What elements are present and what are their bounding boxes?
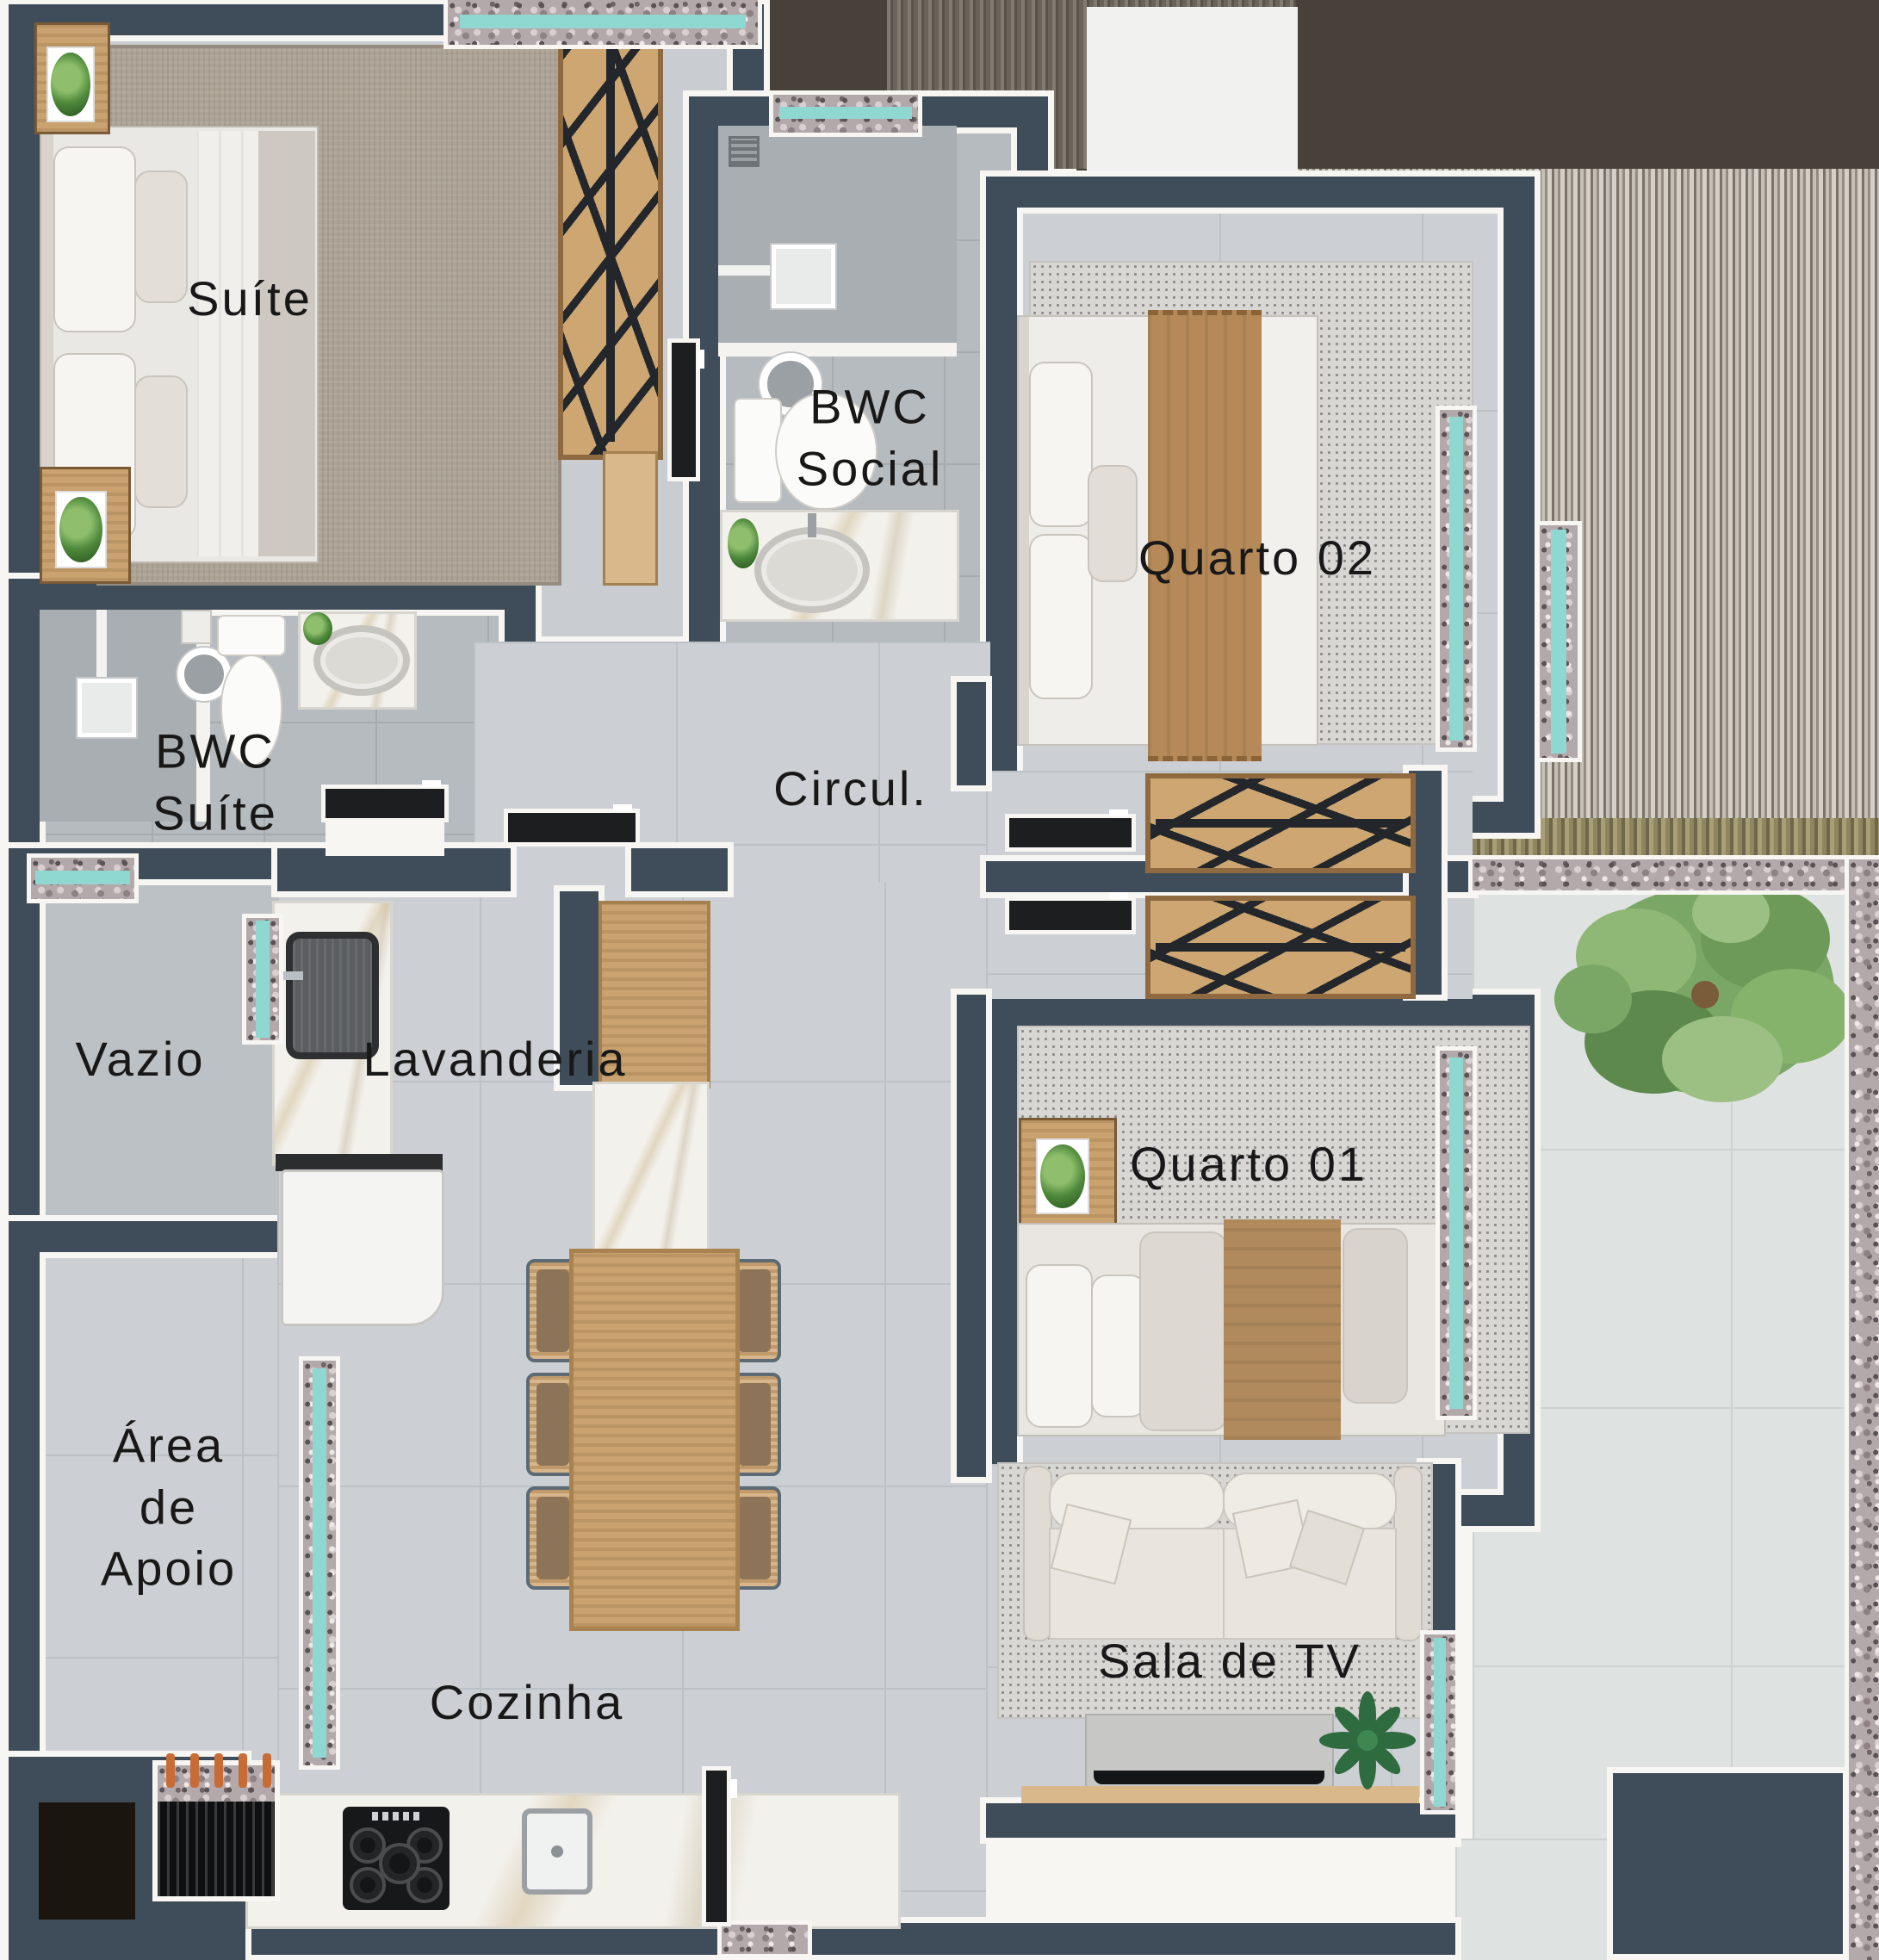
balcony-rail-top bbox=[1473, 859, 1879, 890]
window-bwc-social bbox=[773, 95, 918, 133]
door-bwc-social bbox=[672, 343, 696, 477]
cooktop-icon bbox=[343, 1807, 450, 1910]
wardrobe-icon bbox=[1145, 773, 1416, 873]
pillow bbox=[1029, 362, 1093, 527]
window-suite-top bbox=[448, 0, 758, 45]
wall-lavanderia-top-right bbox=[631, 848, 728, 891]
room-label-bwc-social: BWC Social bbox=[797, 375, 944, 499]
door-quarto-01 bbox=[1009, 901, 1132, 930]
pillow bbox=[1088, 465, 1138, 582]
pipes-icon bbox=[158, 1802, 275, 1896]
shower-arm bbox=[96, 610, 107, 682]
pillow bbox=[1343, 1228, 1408, 1404]
suite-wardrobe-icon bbox=[558, 22, 663, 460]
pillow bbox=[134, 171, 188, 303]
wall-kitchen-divider bbox=[957, 995, 986, 1477]
pillow bbox=[53, 146, 136, 332]
valve-handle-icon bbox=[239, 1753, 247, 1788]
room-label-quarto-02: Quarto 02 bbox=[1138, 527, 1376, 589]
pillow bbox=[134, 375, 188, 508]
room-label-area-apoio: Área de Apoio bbox=[101, 1414, 237, 1599]
counter-edge bbox=[276, 1154, 443, 1171]
sink-icon bbox=[754, 527, 870, 613]
pillow bbox=[1139, 1231, 1227, 1431]
floor-plan: Suíte BWC Social Quarto 02 BWC Suíte Cir… bbox=[0, 0, 1879, 1960]
window-vazio-top bbox=[31, 858, 134, 899]
window-sala bbox=[1424, 1634, 1455, 1810]
wall-sala-bottom bbox=[986, 1803, 1455, 1838]
door-bwc-suite bbox=[326, 789, 444, 818]
plant-icon bbox=[301, 610, 334, 648]
door-lavanderia bbox=[508, 813, 636, 842]
wall-corridor-stub bbox=[957, 682, 986, 785]
room-label-bwc-suite: BWC Suíte bbox=[152, 720, 278, 843]
plant-icon bbox=[47, 47, 95, 122]
valve-handle-icon bbox=[214, 1753, 223, 1788]
bed-throw bbox=[258, 131, 315, 556]
shower-head-icon bbox=[772, 245, 835, 308]
window-vazio-right bbox=[246, 918, 279, 1040]
plant-icon bbox=[1036, 1138, 1089, 1214]
threshold-service-door bbox=[722, 1925, 808, 1954]
cooktop-knobs bbox=[372, 1812, 422, 1820]
pillow bbox=[1091, 1275, 1146, 1417]
room-label-circulacao: Circul. bbox=[773, 758, 928, 820]
window-area-apoio bbox=[303, 1361, 336, 1765]
shower-arm bbox=[718, 265, 773, 276]
room-label-lavanderia: Lavanderia bbox=[363, 1028, 627, 1090]
valve-handle-icon bbox=[166, 1753, 175, 1788]
island-counter bbox=[592, 1082, 710, 1256]
shower-divider bbox=[718, 343, 957, 357]
valve-handle-icon bbox=[190, 1753, 199, 1788]
window-quarto-02 bbox=[1440, 410, 1473, 747]
kitchen-sink-icon bbox=[522, 1808, 592, 1895]
headboard bbox=[1019, 317, 1029, 744]
plant-icon bbox=[725, 515, 761, 572]
pillow bbox=[1026, 1264, 1093, 1428]
shower-head-icon bbox=[78, 679, 136, 737]
door-service bbox=[706, 1771, 727, 1922]
door-quarto-02 bbox=[1009, 818, 1132, 847]
suite-shelf bbox=[603, 451, 658, 586]
wall-bottom-right bbox=[808, 1923, 1455, 1955]
toilet-paper-icon bbox=[181, 610, 212, 644]
terrace-recess bbox=[1607, 1767, 1849, 1960]
exterior-window-icon bbox=[1540, 525, 1578, 758]
balcony-rail-right bbox=[1849, 859, 1879, 1960]
tv-icon bbox=[1094, 1771, 1324, 1784]
room-label-vazio: Vazio bbox=[76, 1028, 206, 1090]
room-label-sala-tv: Sala de TV bbox=[1098, 1630, 1361, 1692]
room-label-suite: Suíte bbox=[187, 268, 313, 330]
room-label-quarto-01: Quarto 01 bbox=[1130, 1133, 1367, 1195]
bed-blanket bbox=[1224, 1219, 1341, 1440]
room-label-cozinha: Cozinha bbox=[430, 1672, 624, 1734]
utility-shaft bbox=[158, 1765, 275, 1896]
sofa-icon bbox=[1023, 1466, 1419, 1645]
quarto-01-bed bbox=[1017, 1223, 1446, 1436]
plant-icon bbox=[1319, 1690, 1416, 1791]
tv-cabinet bbox=[1085, 1714, 1334, 1791]
washer-icon bbox=[281, 1169, 444, 1326]
plant-icon bbox=[55, 491, 107, 568]
shaft-void bbox=[39, 1802, 135, 1920]
dining-table bbox=[569, 1249, 740, 1631]
valve-handle-icon bbox=[263, 1753, 271, 1788]
door-gap-bwc-suite bbox=[326, 818, 444, 856]
wardrobe-icon bbox=[1145, 896, 1416, 999]
window-quarto-01 bbox=[1440, 1051, 1473, 1416]
shower-drain-icon bbox=[729, 136, 760, 167]
tree-icon bbox=[1533, 861, 1877, 1154]
faucet-icon bbox=[808, 513, 816, 537]
pillow bbox=[1029, 534, 1093, 699]
